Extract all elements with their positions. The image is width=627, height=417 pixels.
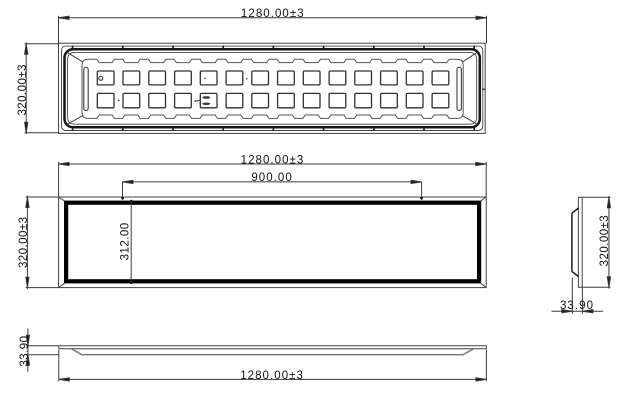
svg-text:33.90: 33.90 <box>19 336 31 367</box>
svg-text:33.90: 33.90 <box>560 300 594 312</box>
svg-text:1280.00±3: 1280.00±3 <box>240 370 304 382</box>
svg-text:1280.00±3: 1280.00±3 <box>241 8 305 20</box>
svg-text:320.00±3: 320.00±3 <box>17 64 29 115</box>
svg-text:320.00±3: 320.00±3 <box>18 217 30 268</box>
svg-text:1280.00±3: 1280.00±3 <box>241 154 305 166</box>
svg-text:320.00±3: 320.00±3 <box>599 215 611 266</box>
svg-text:900.00: 900.00 <box>251 172 292 184</box>
svg-text:312.00: 312.00 <box>119 222 131 260</box>
